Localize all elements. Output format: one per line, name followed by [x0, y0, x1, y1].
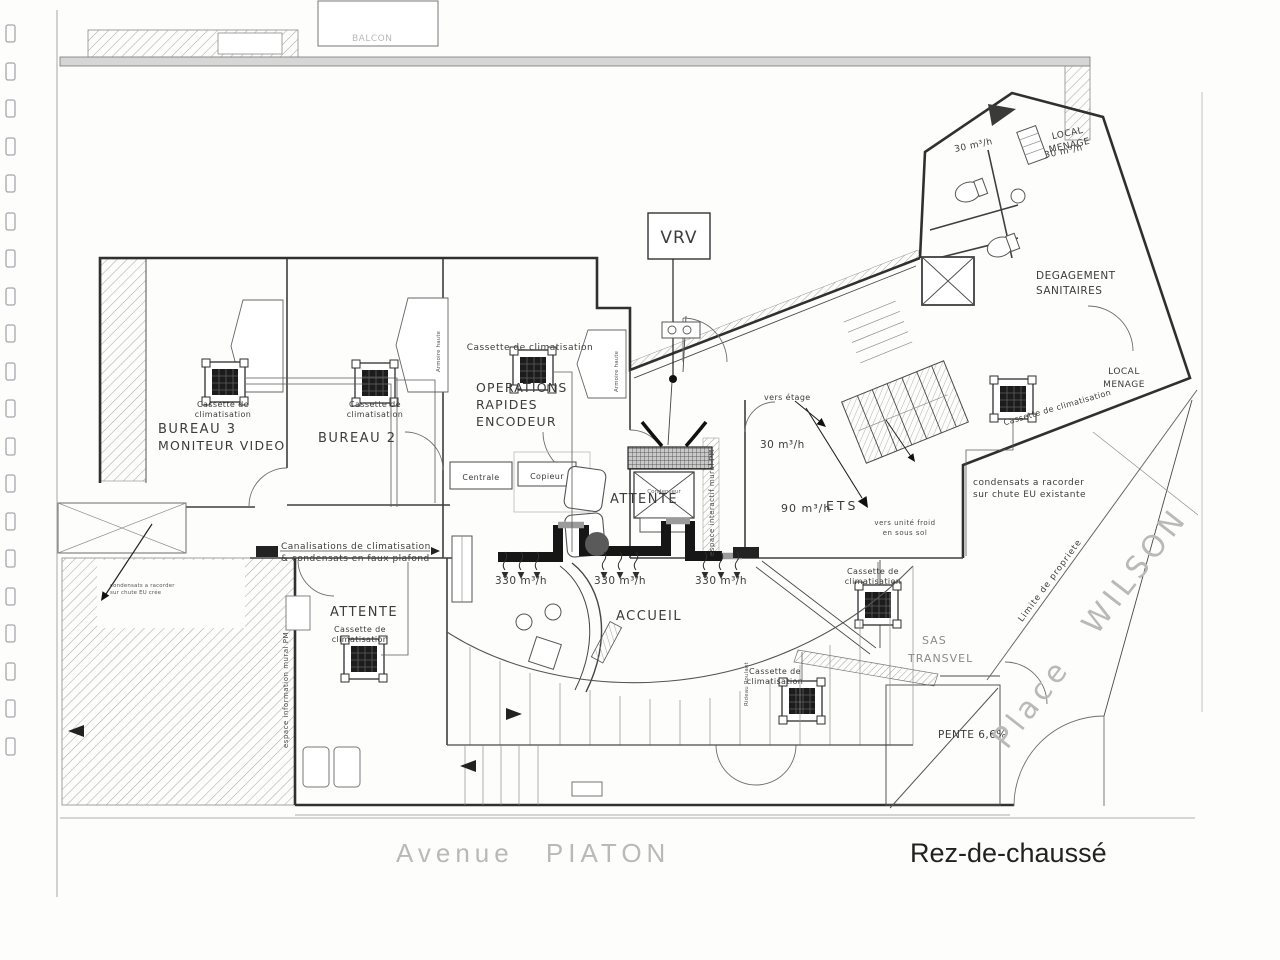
- binding-mark: [6, 550, 15, 567]
- note-condensats-small-1: condensats a racorder: [110, 583, 175, 589]
- cassette-label: climatisation: [747, 677, 804, 686]
- binding-mark: [6, 63, 15, 80]
- centrale-label: Centrale: [462, 473, 499, 482]
- flow-330: 330 m³/h: [495, 575, 547, 587]
- street-title: Avenue PIATON: [396, 838, 670, 868]
- binding-mark: [6, 138, 15, 155]
- cassette-unit: [855, 582, 901, 628]
- vrv-unit: VRV: [648, 213, 710, 445]
- binding-mark: [6, 175, 15, 192]
- room-degagement-2: SANITAIRES: [1036, 285, 1102, 297]
- binding-mark: [6, 438, 15, 455]
- condenser-unit: Condenseur: [628, 422, 712, 532]
- binding-mark: [6, 663, 15, 680]
- cassette-label: Cassette de: [334, 625, 386, 634]
- stairs-upper-steps: [844, 301, 912, 363]
- flow-330: 330 m³/h: [594, 575, 646, 587]
- note-espace-info: espace information mural PM: [282, 632, 290, 748]
- binding-mark: [6, 513, 15, 530]
- room-accueil: ACCUEIL: [616, 609, 682, 624]
- room-sas-1: SAS: [922, 634, 947, 647]
- room-attente-center: ATTENTE: [610, 492, 678, 507]
- note-vers-unite-1: vers unité froid: [874, 519, 935, 527]
- property-line-label: Limite de propriete: [1017, 538, 1085, 625]
- room-operations-2: RAPIDES: [476, 397, 538, 412]
- room-degagement-1: DEGAGEMENT: [1036, 270, 1116, 282]
- cassette-label: climatisation: [845, 577, 902, 586]
- cassette-label: Cassette de: [847, 567, 899, 576]
- floor-plan-drawing: BALCON: [0, 0, 1280, 960]
- binding-mark: [6, 400, 15, 417]
- armoire-label: Armoire haute: [436, 330, 442, 372]
- binding-mark: [6, 738, 15, 755]
- note-condensats-1: condensats a racorder: [973, 478, 1084, 488]
- note-condensats-small-2: sur chute EU crée: [110, 589, 162, 596]
- binding-mark: [6, 250, 15, 267]
- note-rideau-roulant: Rideau Roulant: [744, 662, 750, 706]
- flow-30: 30 m³/h: [760, 439, 805, 451]
- binding-mark: [6, 700, 15, 717]
- cassette-label: Cassette de: [749, 667, 801, 676]
- scanned-floor-plan-page: BALCON: [0, 0, 1280, 960]
- room-operations-3: ENCODEUR: [476, 414, 557, 429]
- binding-marks: [6, 25, 15, 755]
- cassette-unit: [202, 359, 248, 405]
- binding-mark: [6, 475, 15, 492]
- vrv-label: VRV: [660, 228, 697, 248]
- note-condensats-2: sur chute EU existante: [973, 490, 1086, 500]
- note-vers-etage: vers étage: [764, 392, 811, 402]
- binding-mark: [6, 588, 15, 605]
- room-local-menage-right-1: LOCAL: [1108, 367, 1140, 377]
- balcony-label: BALCON: [352, 34, 392, 44]
- cassette-label: Cassette de: [197, 400, 249, 409]
- sanitary-fixtures: [953, 104, 1048, 260]
- binding-mark: [6, 100, 15, 117]
- binding-mark: [6, 288, 15, 305]
- room-bureau2: BUREAU 2: [318, 431, 397, 446]
- cassette-label: climatisation: [195, 410, 252, 419]
- cassette-label: climatisation: [332, 635, 389, 644]
- note-canalisations-1: Canalisations de climatisation: [281, 542, 431, 552]
- note-vers-unite-2: en sous sol: [883, 529, 928, 537]
- copieur-label: Copieur: [530, 472, 564, 481]
- flow-90: 90 m³/h: [781, 502, 831, 515]
- sink: [1011, 189, 1025, 203]
- radiator: [1017, 126, 1047, 165]
- binding-mark: [6, 213, 15, 230]
- room-operations-1: OPERATIONS: [476, 380, 567, 395]
- flow-330: 330 m³/h: [695, 575, 747, 587]
- cassette-label: Cassette de: [349, 400, 401, 409]
- floor-title: Rez-de-chaussé: [910, 838, 1107, 868]
- room-sas-2: TRANSVEL: [907, 652, 973, 665]
- binding-mark: [6, 625, 15, 642]
- binding-mark: [6, 325, 15, 342]
- note-canalisations-2: & condensats en faux plafond: [281, 554, 430, 564]
- cassette-label: climatisation: [347, 410, 404, 419]
- binding-mark: [6, 25, 15, 42]
- note-espace-interactif: espace interactif mural PM: [708, 449, 716, 556]
- elevator-shaft: [922, 257, 974, 305]
- cassette-label: Cassette de climatisation: [467, 343, 594, 353]
- binding-mark: [6, 363, 15, 380]
- room-attente-left: ATTENTE: [330, 605, 398, 620]
- top-facade: BALCON: [60, 1, 1090, 140]
- armoire-label: Armoire haute: [614, 350, 620, 392]
- room-bureau3-sub: MONITEUR VIDEO: [158, 438, 285, 453]
- room-bureau3: BUREAU 3: [158, 422, 237, 437]
